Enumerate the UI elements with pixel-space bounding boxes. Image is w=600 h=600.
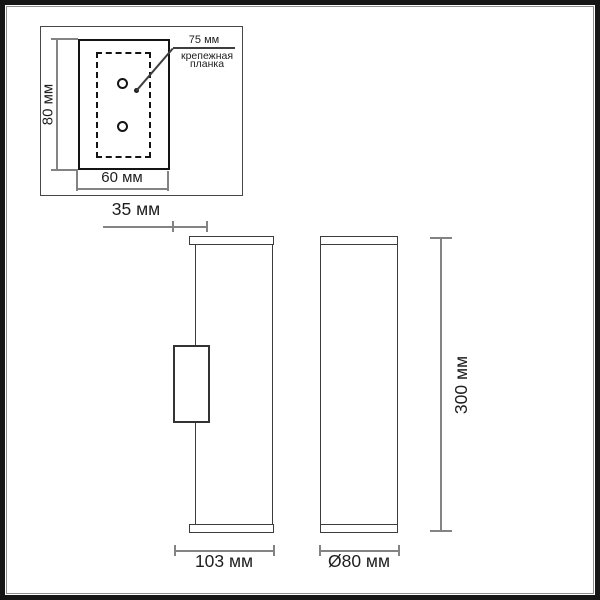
lamp-side-view-top-cap — [189, 236, 274, 245]
lamp-height-dim-tick-top — [430, 237, 452, 239]
lamp-height-dim-line — [440, 238, 442, 531]
lamp-front-view-bottom-cap — [320, 524, 398, 533]
lamp-depth-dim-tick-left — [174, 545, 176, 556]
plate-height-dim-tick-top — [51, 38, 78, 40]
screw-hole-bottom-icon — [117, 121, 128, 132]
plate-height-dim-tick-bottom — [51, 169, 78, 171]
callout-underline — [173, 47, 235, 49]
lamp-diameter-dim-label: Ø80 мм — [319, 552, 399, 571]
bracket-depth-dim-tick-left — [172, 221, 174, 232]
mounting-bracket-dashed-outline — [96, 52, 151, 158]
bracket-depth-dim-label: 35 мм — [101, 200, 171, 219]
plate-height-dim-label: 80 мм — [41, 84, 56, 126]
callout-caption-line2: планка — [190, 58, 224, 70]
lamp-height-dim-label: 300 мм — [452, 353, 470, 417]
lamp-depth-dim-label: 103 мм — [184, 552, 264, 571]
lamp-front-view-body — [320, 236, 398, 533]
lamp-side-view-bottom-cap — [189, 524, 274, 533]
screw-hole-top-icon — [117, 78, 128, 89]
lamp-front-view-top-cap — [320, 236, 398, 245]
plate-width-dim-tick-right — [167, 171, 169, 191]
lamp-depth-dim-tick-right — [273, 545, 275, 556]
callout-value-label: 75 мм — [173, 34, 235, 46]
lamp-dimension-drawing: 75 мм крепежная планка 80 мм 60 мм 35 мм… — [0, 0, 600, 600]
plate-width-dim-label: 60 мм — [92, 170, 152, 186]
wall-mount-bracket — [173, 345, 210, 423]
callout-caption-label: крепежная планка — [167, 52, 247, 68]
bracket-depth-dim-line — [103, 226, 207, 228]
lamp-height-dim-tick-bottom — [430, 530, 452, 532]
plate-width-dim-tick-left — [76, 171, 78, 191]
bracket-depth-dim-tick-right — [206, 221, 208, 232]
plate-width-dim-line — [77, 188, 168, 190]
